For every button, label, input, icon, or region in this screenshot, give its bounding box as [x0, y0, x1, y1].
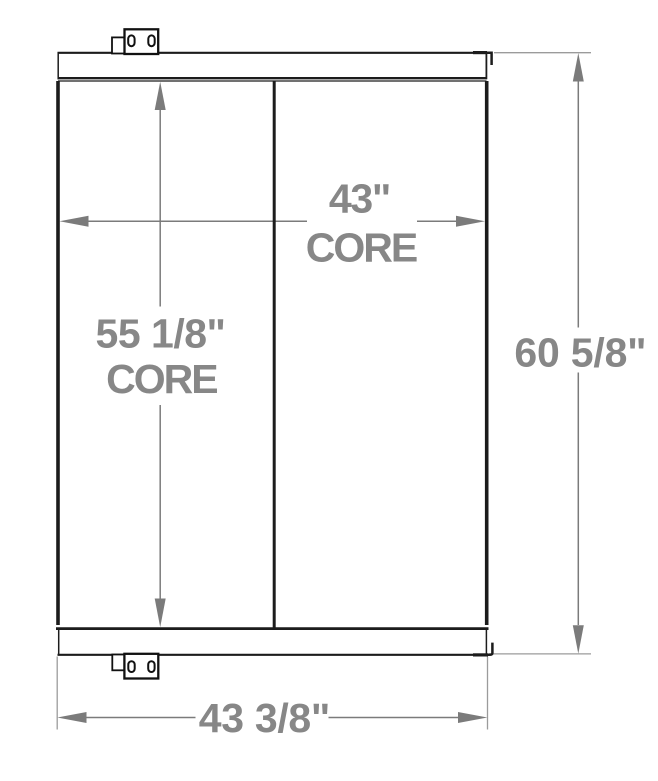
svg-text:55 1/8": 55 1/8" — [96, 311, 226, 357]
svg-text:60 5/8": 60 5/8" — [514, 330, 646, 376]
svg-text:43": 43" — [329, 176, 390, 222]
svg-text:CORE: CORE — [106, 356, 217, 402]
svg-text:43 3/8": 43 3/8" — [199, 695, 330, 741]
svg-text:CORE: CORE — [306, 225, 417, 271]
